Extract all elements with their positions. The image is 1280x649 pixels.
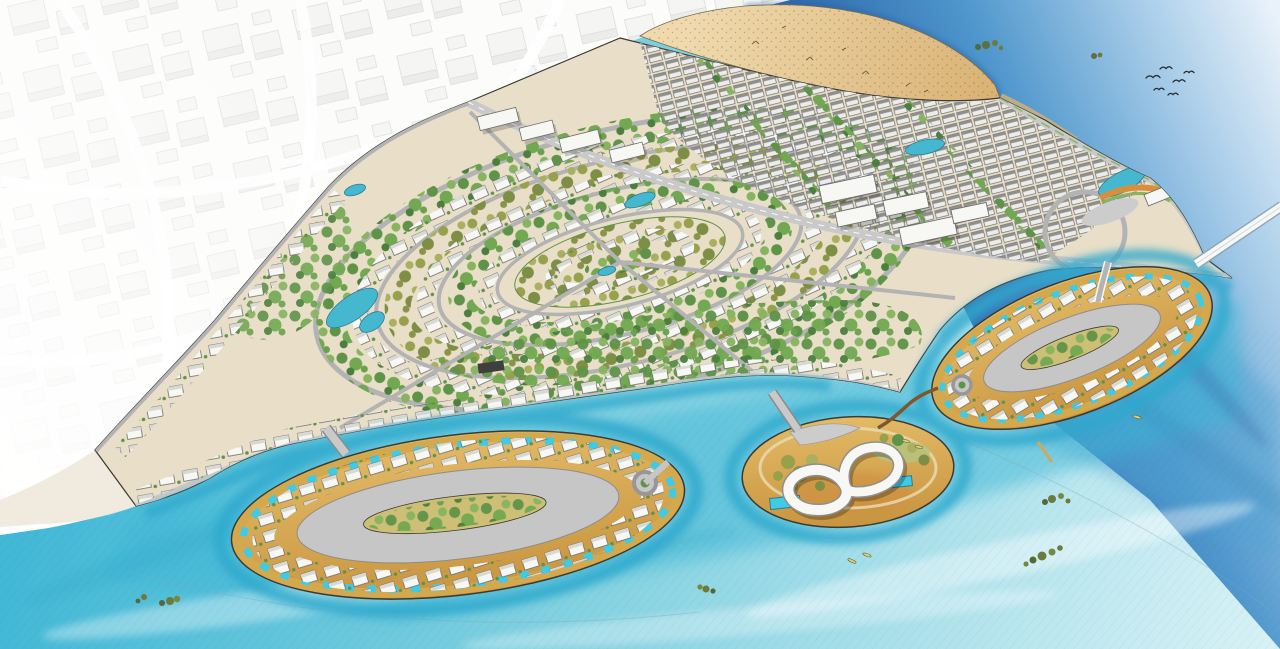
masterplan-illustration [0, 0, 1280, 649]
masterplan-canvas [0, 0, 1280, 649]
